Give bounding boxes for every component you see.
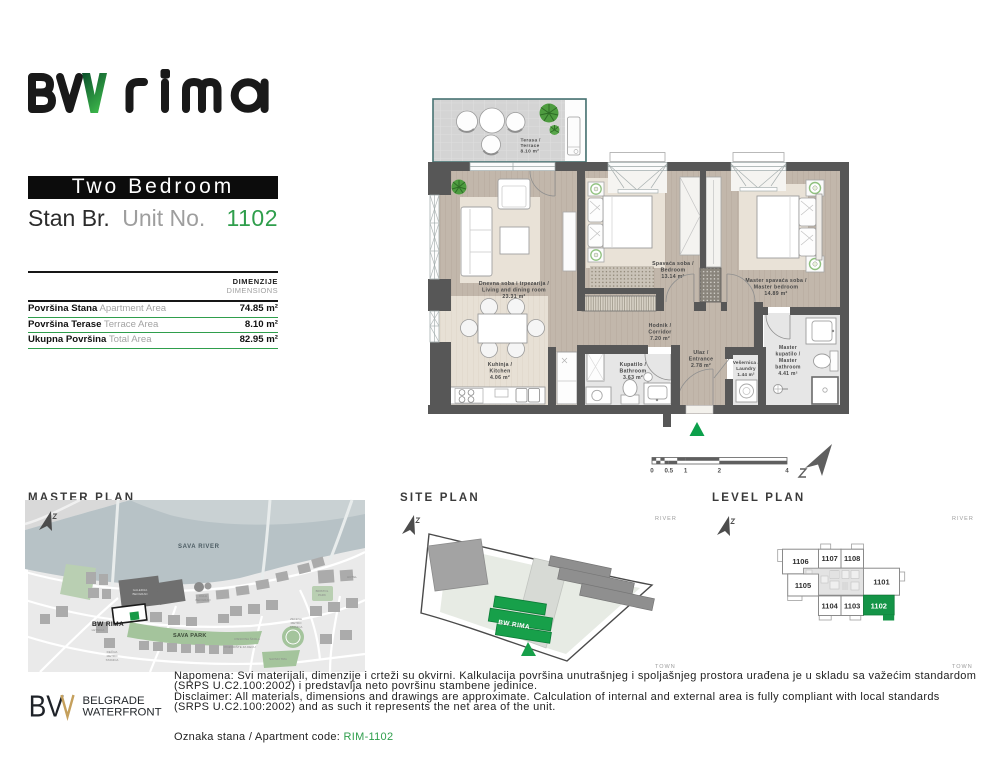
svg-text:1104: 1104 xyxy=(822,602,839,611)
svg-text:1103: 1103 xyxy=(844,602,860,611)
svg-text:SAVA PARK: SAVA PARK xyxy=(173,633,207,639)
svg-text:0.5: 0.5 xyxy=(664,468,673,475)
svg-text:Dnevna soba i trpezarija /: Dnevna soba i trpezarija / xyxy=(479,281,550,287)
svg-text:STANICA: STANICA xyxy=(106,658,119,662)
svg-text:WATERFRONT: WATERFRONT xyxy=(83,706,162,718)
svg-text:BW RIMA: BW RIMA xyxy=(92,621,124,628)
svg-text:Bathroom: Bathroom xyxy=(620,369,647,375)
svg-text:RIVER: RIVER xyxy=(655,516,677,522)
svg-text:3.63 m²: 3.63 m² xyxy=(623,375,643,381)
svg-text:POZORIŠTE ZA DECU: POZORIŠTE ZA DECU xyxy=(224,644,255,649)
svg-text:8.10 m²: 8.10 m² xyxy=(521,149,540,155)
svg-text:1106: 1106 xyxy=(792,557,808,566)
svg-text:HOTEL: HOTEL xyxy=(347,575,357,579)
svg-text:4.41 m²: 4.41 m² xyxy=(778,371,797,377)
svg-text:BV: BV xyxy=(29,690,65,724)
svg-text:BEOGRAD: BEOGRAD xyxy=(132,592,148,596)
svg-text:STANICA: STANICA xyxy=(290,625,303,629)
svg-text:Bedroom: Bedroom xyxy=(661,268,686,274)
svg-text:LETNICA: LETNICA xyxy=(92,628,105,632)
svg-text:14.89 m²: 14.89 m² xyxy=(764,291,787,297)
svg-text:RIVER: RIVER xyxy=(952,516,974,522)
svg-text:Living and dining room: Living and dining room xyxy=(482,288,546,294)
svg-text:BEOGRAD: BEOGRAD xyxy=(195,598,211,602)
svg-text:4: 4 xyxy=(785,468,789,475)
svg-text:4.06 m²: 4.06 m² xyxy=(490,375,510,381)
svg-text:Entrance: Entrance xyxy=(689,357,714,363)
svg-text:Terrace: Terrace xyxy=(521,143,540,149)
svg-text:Ulaz /: Ulaz / xyxy=(693,350,709,356)
svg-text:1105: 1105 xyxy=(795,581,811,590)
svg-text:kupatilo /: kupatilo / xyxy=(776,352,801,358)
svg-text:OSNOVNA ŠKOLA: OSNOVNA ŠKOLA xyxy=(234,636,260,641)
svg-text:1102: 1102 xyxy=(871,602,887,611)
svg-text:SAVSKI TRG: SAVSKI TRG xyxy=(269,657,287,661)
svg-text:Corridor: Corridor xyxy=(648,330,671,336)
svg-text:Kitchen: Kitchen xyxy=(489,369,510,375)
svg-text:Kupatilo /: Kupatilo / xyxy=(620,362,647,368)
svg-text:Vešernica /: Vešernica / xyxy=(733,360,760,365)
svg-text:Master spavaća soba /: Master spavaća soba / xyxy=(745,278,807,284)
svg-text:1.44 m²: 1.44 m² xyxy=(737,372,755,377)
svg-text:Hodnik /: Hodnik / xyxy=(649,323,672,329)
svg-text:Terasa /: Terasa / xyxy=(521,137,542,143)
svg-text:Kuhinja /: Kuhinja / xyxy=(488,362,513,368)
svg-text:Spavaća soba /: Spavaća soba / xyxy=(652,261,694,267)
svg-text:1101: 1101 xyxy=(873,578,889,587)
svg-text:2: 2 xyxy=(718,468,722,475)
svg-text:SAVA RIVER: SAVA RIVER xyxy=(178,544,220,550)
svg-text:23.31 m²: 23.31 m² xyxy=(502,294,525,300)
svg-text:Master bedroom: Master bedroom xyxy=(754,285,799,291)
svg-text:Laundry: Laundry xyxy=(736,366,756,371)
svg-text:0: 0 xyxy=(650,468,654,475)
svg-text:1: 1 xyxy=(684,468,688,475)
svg-text:1107: 1107 xyxy=(822,554,838,563)
svg-text:Master: Master xyxy=(779,358,797,364)
svg-text:Master: Master xyxy=(779,345,797,351)
svg-text:PARK: PARK xyxy=(318,593,326,597)
svg-text:1108: 1108 xyxy=(844,554,860,563)
svg-text:7.20 m²: 7.20 m² xyxy=(650,336,670,342)
svg-text:bathroom: bathroom xyxy=(775,365,801,371)
svg-text:BELGRADE: BELGRADE xyxy=(83,695,145,707)
svg-text:2.78 m²: 2.78 m² xyxy=(691,363,711,369)
